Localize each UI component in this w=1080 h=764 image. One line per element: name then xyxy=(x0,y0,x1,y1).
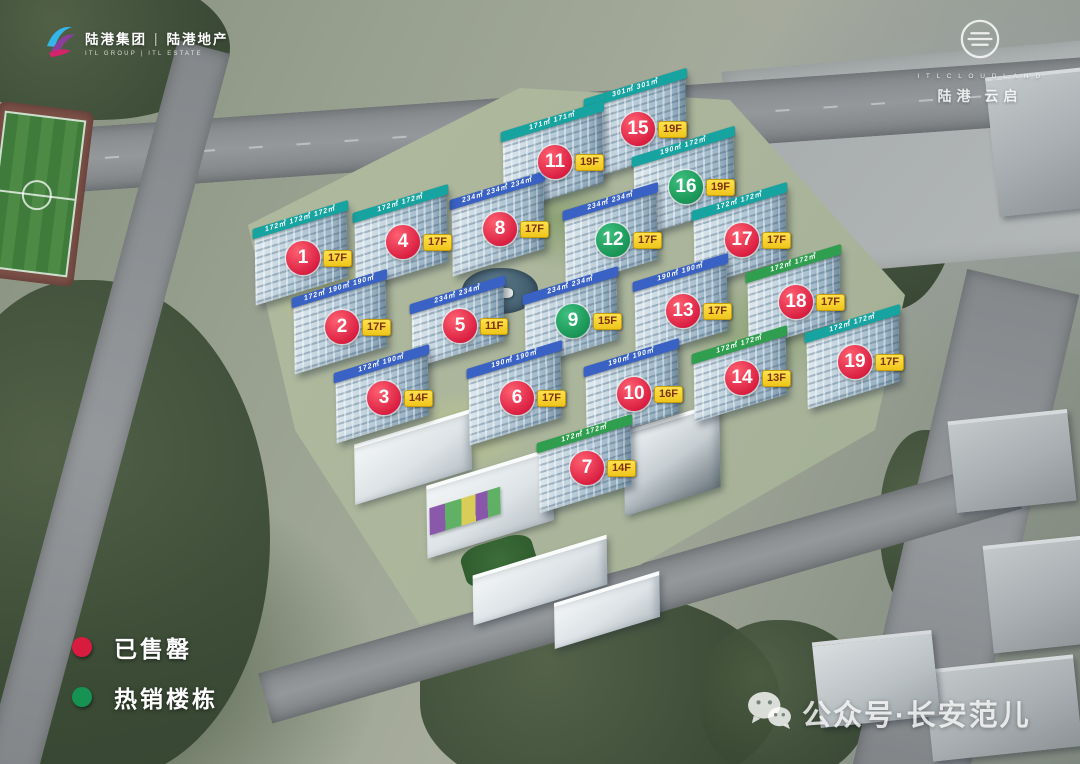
building-number: 2 xyxy=(325,310,359,344)
floor-chip: 13F xyxy=(762,370,791,387)
developer-swoosh-icon xyxy=(42,22,76,63)
building-number: 13 xyxy=(666,294,700,328)
sold-out-dot xyxy=(72,637,92,657)
legend-item-hot: 热销楼栋 xyxy=(72,680,218,714)
building-marker-14[interactable]: 1413F xyxy=(725,361,791,395)
project-logo: I T L C L O U D L A N D 陆港 云启 xyxy=(900,18,1060,106)
building-number: 10 xyxy=(617,377,651,411)
roof-area-banner: 171㎡ 171㎡ xyxy=(501,101,604,143)
building-number: 9 xyxy=(556,304,590,338)
legend-item-sold: 已售罄 xyxy=(72,630,218,664)
roof-area-banner: 172㎡ 172㎡ 172㎡ xyxy=(252,200,348,240)
floor-chip: 17F xyxy=(875,354,904,371)
sold-out-label: 已售罄 xyxy=(114,630,192,664)
building-number: 5 xyxy=(443,309,477,343)
building-number: 1 xyxy=(286,241,320,275)
floor-chip: 19F xyxy=(658,121,687,138)
floor-chip: 19F xyxy=(706,179,735,196)
building-number: 19 xyxy=(838,345,872,379)
floor-chip: 14F xyxy=(404,390,433,407)
floor-chip: 17F xyxy=(633,232,662,249)
hot-sale-label: 热销楼栋 xyxy=(114,680,218,714)
developer-subtitle: ITL GROUP | ITL ESTATE xyxy=(85,51,229,57)
legend: 已售罄 热销楼栋 xyxy=(72,630,218,714)
building-marker-11[interactable]: 1119F xyxy=(538,145,604,179)
project-name: 陆港 云启 xyxy=(938,86,1023,106)
building-marker-10[interactable]: 1016F xyxy=(617,377,683,411)
building-marker-9[interactable]: 915F xyxy=(556,304,622,338)
developer-name-estate: 陆港地产 xyxy=(167,28,229,48)
building-number: 7 xyxy=(570,451,604,485)
building-number: 8 xyxy=(483,212,517,246)
floor-chip: 17F xyxy=(423,234,452,251)
building-marker-17[interactable]: 1717F xyxy=(725,223,791,257)
building-number: 3 xyxy=(367,381,401,415)
building-marker-15[interactable]: 1519F xyxy=(621,112,687,146)
logo-divider: | xyxy=(154,31,160,46)
project-wordmark: I T L C L O U D L A N D xyxy=(917,73,1042,80)
hot-sale-dot xyxy=(72,687,92,707)
floor-chip: 17F xyxy=(520,221,549,238)
wechat-icon xyxy=(746,690,792,735)
floor-chip: 19F xyxy=(575,154,604,171)
building-marker-7[interactable]: 714F xyxy=(570,451,636,485)
floor-chip: 17F xyxy=(762,232,791,249)
building-number: 11 xyxy=(538,145,572,179)
developer-logo: 陆港集团 | 陆港地产 ITL GROUP | ITL ESTATE xyxy=(42,22,229,63)
building-marker-1[interactable]: 117F xyxy=(286,241,352,275)
building-number: 14 xyxy=(725,361,759,395)
floor-chip: 17F xyxy=(816,294,845,311)
building-number: 15 xyxy=(621,112,655,146)
building-number: 4 xyxy=(386,225,420,259)
project-ring-icon xyxy=(959,18,1001,65)
watermark: 公众号·长安范儿 xyxy=(746,690,1031,735)
building-number: 16 xyxy=(669,170,703,204)
building-marker-16[interactable]: 1619F xyxy=(669,170,735,204)
building-marker-18[interactable]: 1817F xyxy=(779,285,845,319)
building-marker-3[interactable]: 314F xyxy=(367,381,433,415)
building-marker-5[interactable]: 511F xyxy=(443,309,508,343)
building-number: 6 xyxy=(500,381,534,415)
floor-chip: 17F xyxy=(323,250,352,267)
building-marker-8[interactable]: 817F xyxy=(483,212,549,246)
roof-area-banner: 234㎡ 234㎡ 234㎡ xyxy=(449,171,545,211)
building-number: 18 xyxy=(779,285,813,319)
floor-chip: 16F xyxy=(654,386,683,403)
floor-chip: 17F xyxy=(362,319,391,336)
building-marker-4[interactable]: 417F xyxy=(386,225,452,259)
building-marker-19[interactable]: 1917F xyxy=(838,345,904,379)
masterplan-scene: 301㎡ 301㎡1519F171㎡ 171㎡1119F190㎡ 172㎡161… xyxy=(0,0,1080,764)
building-number: 17 xyxy=(725,223,759,257)
roof-area-banner: 172㎡ 172㎡ xyxy=(352,184,448,224)
floor-chip: 14F xyxy=(607,460,636,477)
floor-chip: 17F xyxy=(537,390,566,407)
building-marker-2[interactable]: 217F xyxy=(325,310,391,344)
floor-chip: 17F xyxy=(703,303,732,320)
building-number: 12 xyxy=(596,223,630,257)
building-marker-6[interactable]: 617F xyxy=(500,381,566,415)
floor-chip: 11F xyxy=(480,318,508,335)
building-marker-13[interactable]: 1317F xyxy=(666,294,732,328)
developer-name-group: 陆港集团 xyxy=(85,28,147,48)
watermark-text: 公众号·长安范儿 xyxy=(802,692,1031,734)
floor-chip: 15F xyxy=(593,313,622,330)
building-marker-12[interactable]: 1217F xyxy=(596,223,662,257)
